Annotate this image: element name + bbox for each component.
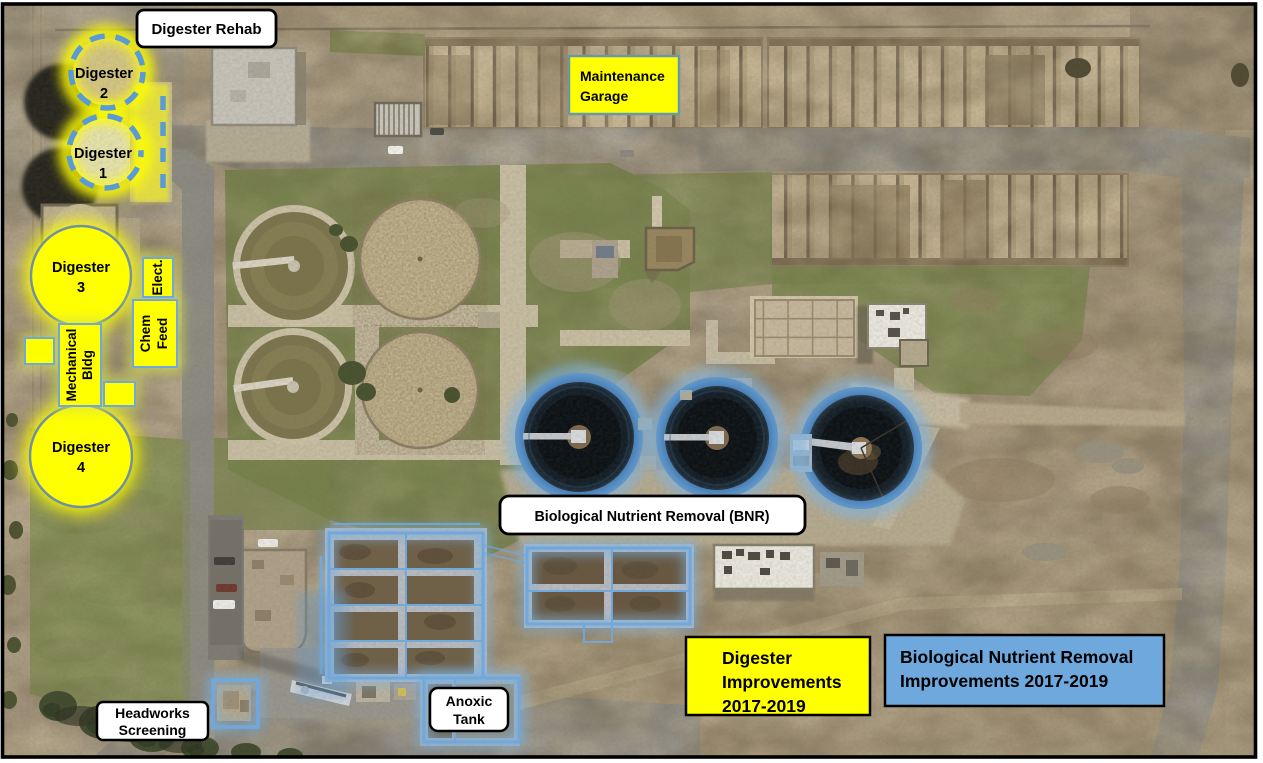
svg-text:2: 2 xyxy=(100,86,108,102)
svg-text:Elect.: Elect. xyxy=(150,259,165,295)
svg-text:Biological Nutrient Removal: Biological Nutrient Removal xyxy=(900,647,1133,667)
svg-text:Digester: Digester xyxy=(52,440,110,456)
svg-text:Anoxic: Anoxic xyxy=(446,693,493,709)
svg-text:2017-2019: 2017-2019 xyxy=(722,696,806,716)
svg-text:4: 4 xyxy=(77,460,85,476)
svg-text:Digester: Digester xyxy=(75,66,133,82)
svg-text:Headworks: Headworks xyxy=(115,705,190,721)
svg-text:Biological Nutrient Removal (B: Biological Nutrient Removal (BNR) xyxy=(534,509,769,525)
svg-text:Screening: Screening xyxy=(119,722,187,738)
svg-text:Improvements 2017-2019: Improvements 2017-2019 xyxy=(900,671,1108,691)
svg-text:Digester: Digester xyxy=(722,648,792,668)
svg-text:3: 3 xyxy=(77,280,85,296)
svg-text:Digester Rehab: Digester Rehab xyxy=(151,21,261,38)
svg-text:Improvements: Improvements xyxy=(722,672,842,692)
svg-text:Digester: Digester xyxy=(74,146,132,162)
svg-text:Digester: Digester xyxy=(52,260,110,276)
svg-text:Tank: Tank xyxy=(453,711,485,727)
svg-text:1: 1 xyxy=(99,166,107,182)
svg-text:Feed: Feed xyxy=(155,318,170,350)
svg-text:Garage: Garage xyxy=(580,88,628,104)
svg-text:Mechanical: Mechanical xyxy=(64,329,79,402)
svg-text:Maintenance: Maintenance xyxy=(580,68,665,84)
svg-text:Bldg: Bldg xyxy=(80,350,95,380)
svg-text:Chem: Chem xyxy=(138,315,153,353)
